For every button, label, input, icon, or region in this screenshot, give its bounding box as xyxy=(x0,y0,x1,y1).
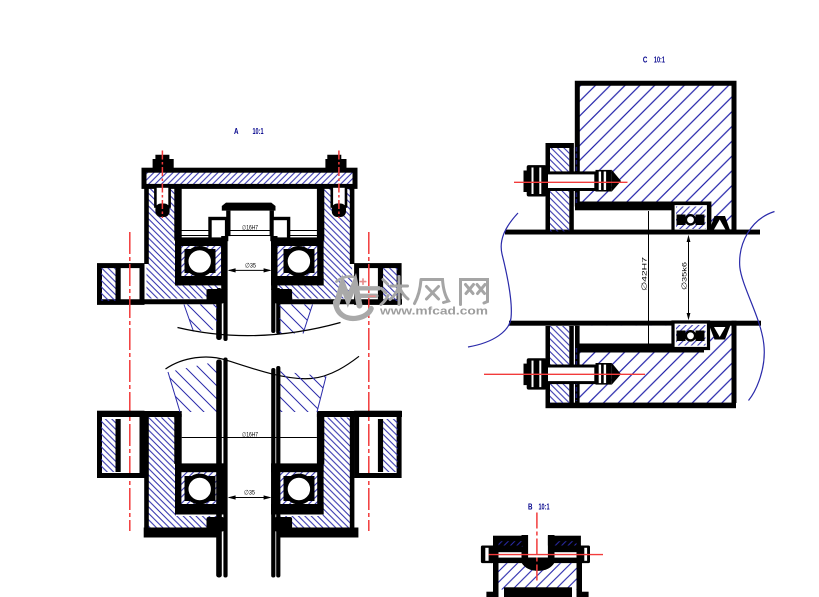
svg-text:∅16H7: ∅16H7 xyxy=(242,432,258,439)
svg-text:A: A xyxy=(234,127,239,136)
svg-text:∅35: ∅35 xyxy=(244,490,255,497)
svg-text:∅16H7: ∅16H7 xyxy=(242,225,258,232)
svg-text:B: B xyxy=(528,503,533,512)
svg-text:∅35: ∅35 xyxy=(245,263,256,270)
svg-text:10:1: 10:1 xyxy=(654,56,665,65)
svg-text:∅35k6: ∅35k6 xyxy=(682,262,689,290)
svg-text:10:1: 10:1 xyxy=(253,127,264,136)
svg-text:10:1: 10:1 xyxy=(539,503,550,512)
svg-text:∅42H7: ∅42H7 xyxy=(642,257,649,291)
svg-text:www.mfcad.com: www.mfcad.com xyxy=(379,306,488,318)
svg-text:C: C xyxy=(643,56,648,65)
